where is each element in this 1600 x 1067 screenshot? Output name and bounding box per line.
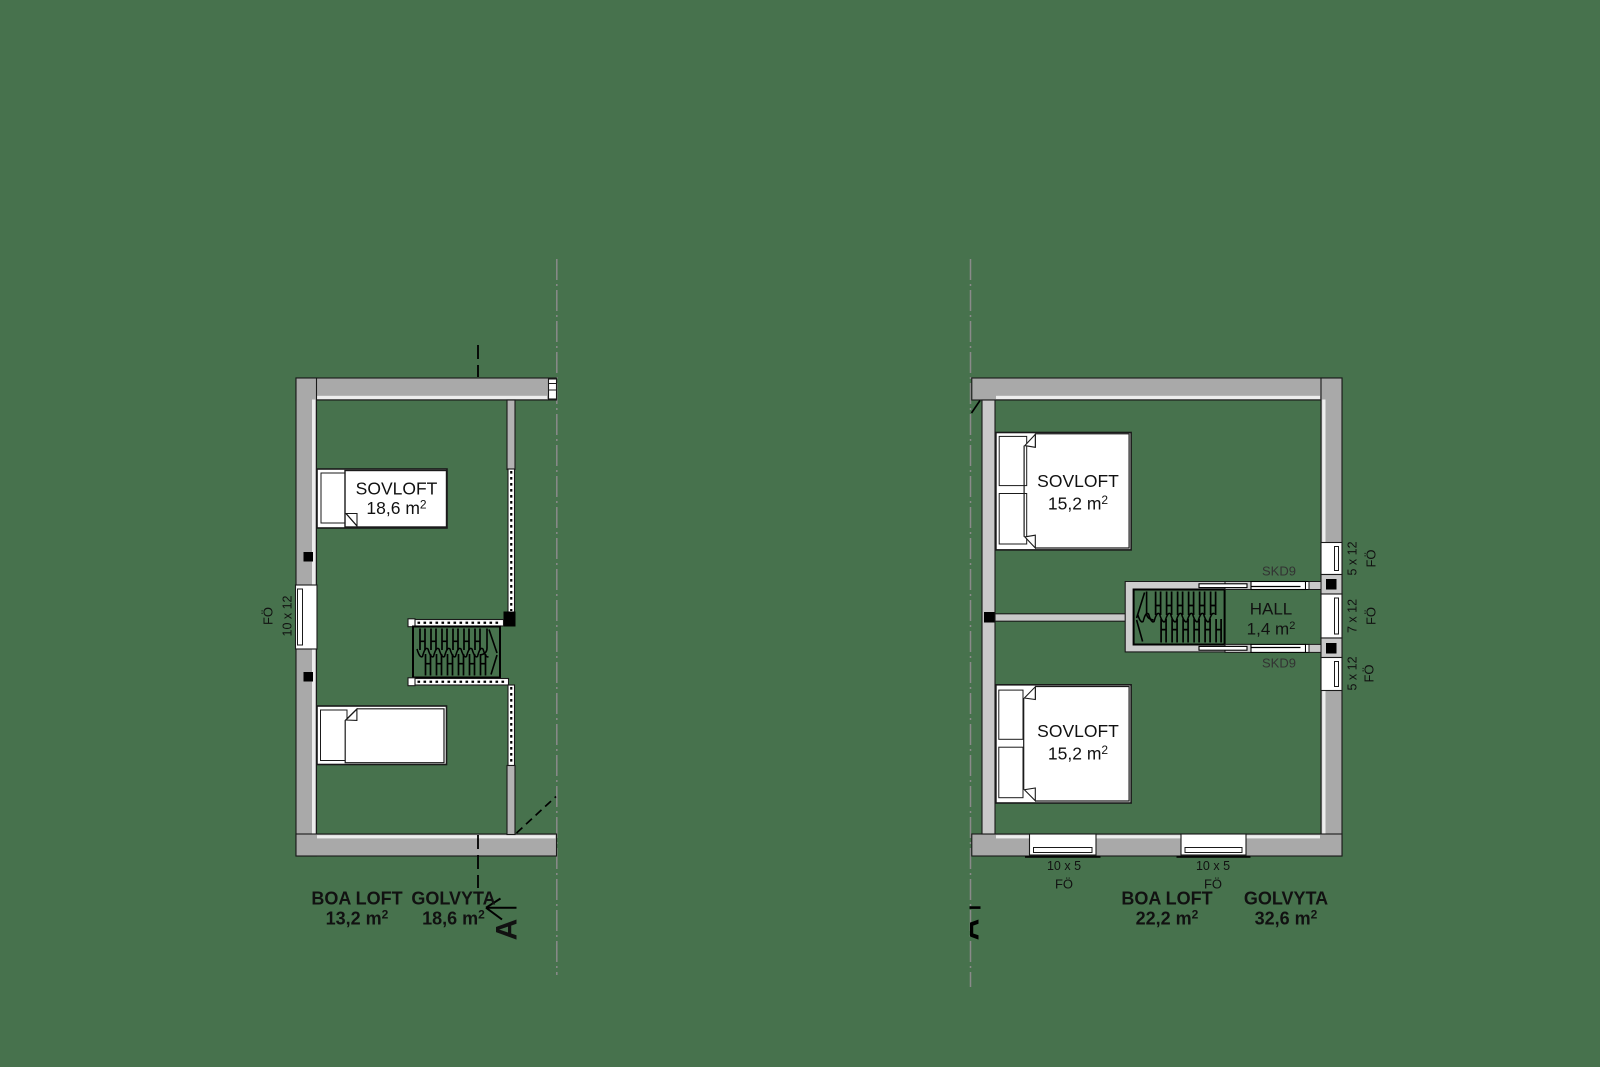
svg-text:FÖ: FÖ	[1055, 877, 1073, 892]
svg-text:HALL: HALL	[1250, 600, 1293, 619]
svg-text:GOLVYTA: GOLVYTA	[411, 889, 495, 909]
svg-text:5 x 12: 5 x 12	[1346, 656, 1360, 690]
svg-text:FÖ: FÖ	[1364, 549, 1379, 567]
svg-text:10 x 5: 10 x 5	[1047, 859, 1081, 873]
svg-text:15,2 m2: 15,2 m2	[1048, 743, 1109, 764]
svg-text:SOVLOFT: SOVLOFT	[1037, 721, 1119, 741]
svg-text:BOA LOFT: BOA LOFT	[311, 889, 402, 909]
svg-text:18,6 m2: 18,6 m2	[422, 908, 485, 929]
svg-text:FÖ: FÖ	[1362, 664, 1377, 682]
svg-text:SOVLOFT: SOVLOFT	[356, 479, 438, 499]
svg-text:A: A	[953, 919, 986, 941]
svg-text:13,2 m2: 13,2 m2	[326, 908, 389, 929]
svg-text:SKD9: SKD9	[1262, 564, 1296, 579]
svg-text:5 x 12: 5 x 12	[1346, 541, 1360, 575]
svg-text:GOLVYTA: GOLVYTA	[1244, 889, 1328, 909]
svg-text:15,2 m2: 15,2 m2	[1048, 493, 1109, 514]
svg-text:32,6 m2: 32,6 m2	[1255, 908, 1318, 929]
svg-text:SOVLOFT: SOVLOFT	[1037, 471, 1119, 491]
svg-text:SKD9: SKD9	[1262, 656, 1296, 671]
svg-text:FÖ: FÖ	[261, 607, 276, 625]
svg-text:18,6 m2: 18,6 m2	[366, 497, 427, 518]
svg-text:A: A	[491, 919, 524, 941]
svg-text:7 x 12: 7 x 12	[1346, 599, 1360, 633]
svg-text:FÖ: FÖ	[1364, 607, 1379, 625]
svg-text:BOA LOFT: BOA LOFT	[1121, 889, 1212, 909]
svg-text:10 x 5: 10 x 5	[1196, 859, 1230, 873]
svg-text:22,2 m2: 22,2 m2	[1136, 908, 1199, 929]
svg-text:1,4 m2: 1,4 m2	[1247, 620, 1296, 639]
svg-text:10 x 12: 10 x 12	[281, 595, 295, 636]
